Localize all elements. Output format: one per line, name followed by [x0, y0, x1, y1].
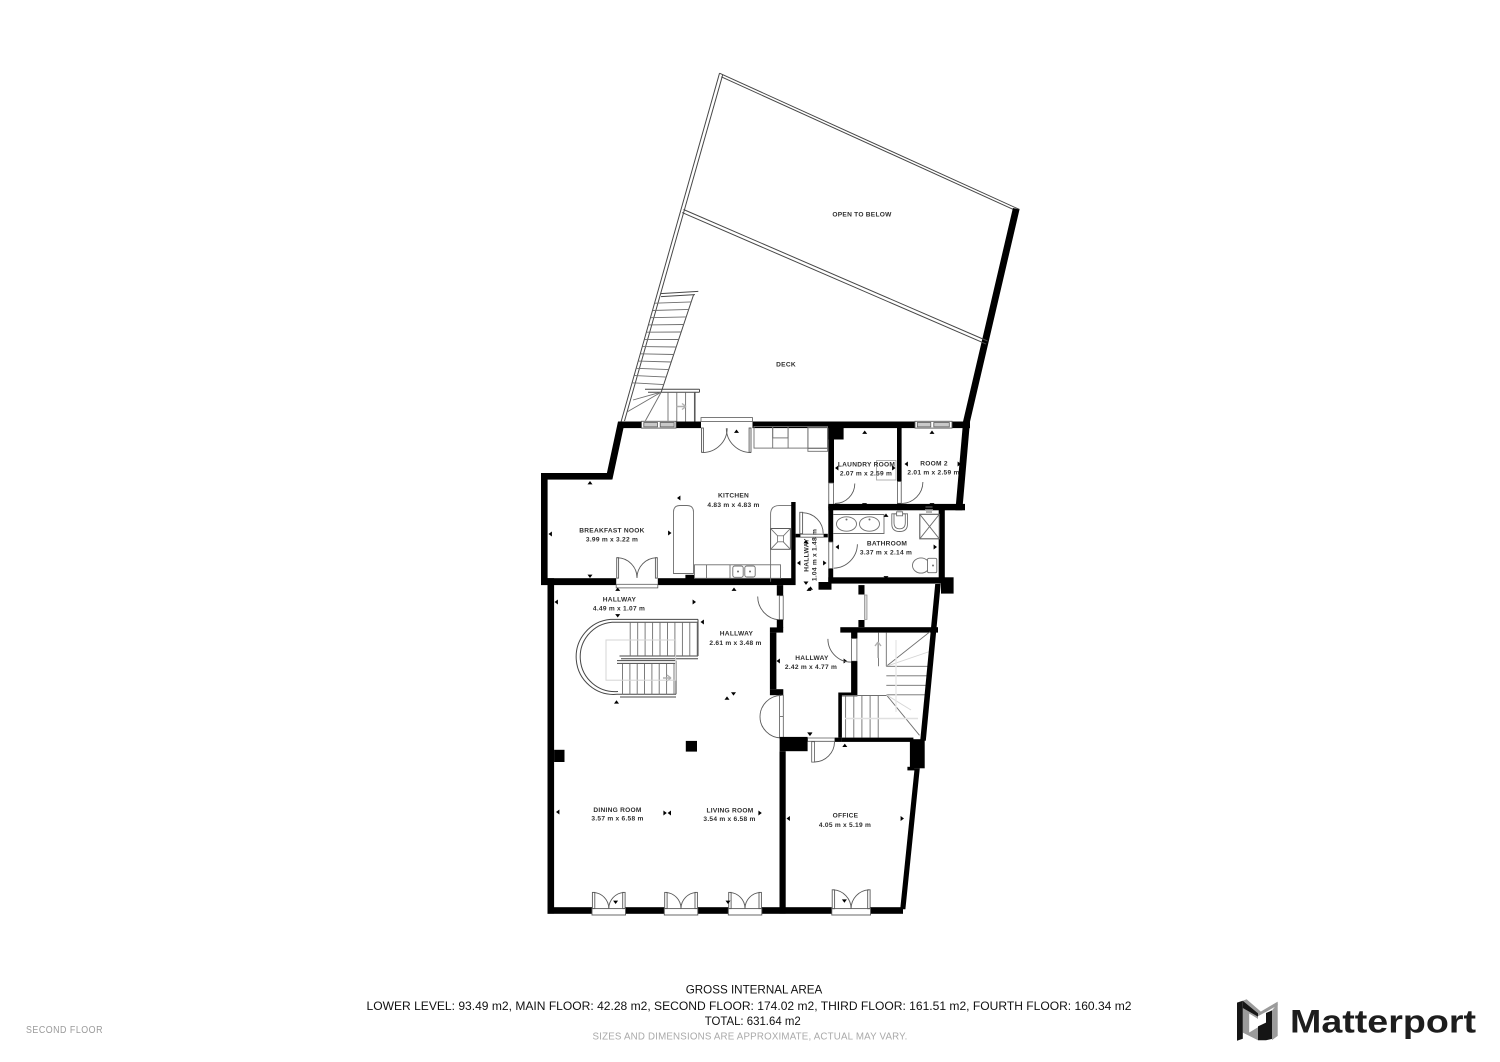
svg-text:ROOM 2: ROOM 2 [920, 460, 948, 467]
svg-text:HALLWAY: HALLWAY [720, 630, 754, 637]
svg-text:3.54 m x 6.58 m: 3.54 m x 6.58 m [703, 816, 755, 823]
svg-text:4.83 m x 4.83 m: 4.83 m x 4.83 m [707, 502, 759, 509]
svg-text:SIZES AND DIMENSIONS ARE APPRO: SIZES AND DIMENSIONS ARE APPROXIMATE, AC… [593, 1032, 908, 1043]
svg-text:OPEN TO BELOW: OPEN TO BELOW [832, 212, 892, 219]
svg-text:HALLWAY: HALLWAY [795, 655, 829, 662]
svg-text:3.57 m x 6.58 m: 3.57 m x 6.58 m [591, 815, 643, 822]
svg-text:LOWER LEVEL: 93.49 m2, MAIN FL: LOWER LEVEL: 93.49 m2, MAIN FLOOR: 42.28… [367, 1000, 1132, 1013]
svg-text:BREAKFAST NOOK: BREAKFAST NOOK [579, 528, 644, 535]
svg-text:2.07 m x 2.59 m: 2.07 m x 2.59 m [840, 471, 892, 478]
svg-text:LIVING ROOM: LIVING ROOM [706, 807, 753, 814]
svg-text:2.42 m x 4.77 m: 2.42 m x 4.77 m [785, 664, 837, 671]
svg-text:SECOND FLOOR: SECOND FLOOR [26, 1024, 103, 1036]
svg-text:OFFICE: OFFICE [833, 812, 859, 819]
svg-text:KITCHEN: KITCHEN [718, 492, 749, 499]
svg-text:3.99 m x 3.22 m: 3.99 m x 3.22 m [586, 537, 638, 544]
svg-text:HALLWAY: HALLWAY [603, 596, 637, 603]
svg-text:2.61 m x 3.48 m: 2.61 m x 3.48 m [709, 640, 761, 647]
svg-text:BATHROOM: BATHROOM [867, 540, 908, 547]
svg-text:1.04 m x 1.48 m: 1.04 m x 1.48 m [812, 529, 819, 581]
svg-text:DINING ROOM: DINING ROOM [593, 807, 641, 814]
svg-text:3.37 m x 2.14 m: 3.37 m x 2.14 m [860, 549, 912, 556]
svg-text:DECK: DECK [776, 362, 796, 369]
svg-text:LAUNDRY ROOM: LAUNDRY ROOM [838, 462, 895, 469]
svg-text:4.05 m x 5.19 m: 4.05 m x 5.19 m [819, 822, 871, 829]
svg-text:TOTAL: 631.64 m2: TOTAL: 631.64 m2 [705, 1015, 801, 1028]
svg-text:4.49 m x 1.07 m: 4.49 m x 1.07 m [593, 605, 645, 612]
svg-text:2.01 m x 2.59 m: 2.01 m x 2.59 m [907, 469, 959, 476]
svg-text:Matterport: Matterport [1290, 1003, 1476, 1039]
svg-text:GROSS INTERNAL AREA: GROSS INTERNAL AREA [686, 984, 823, 997]
